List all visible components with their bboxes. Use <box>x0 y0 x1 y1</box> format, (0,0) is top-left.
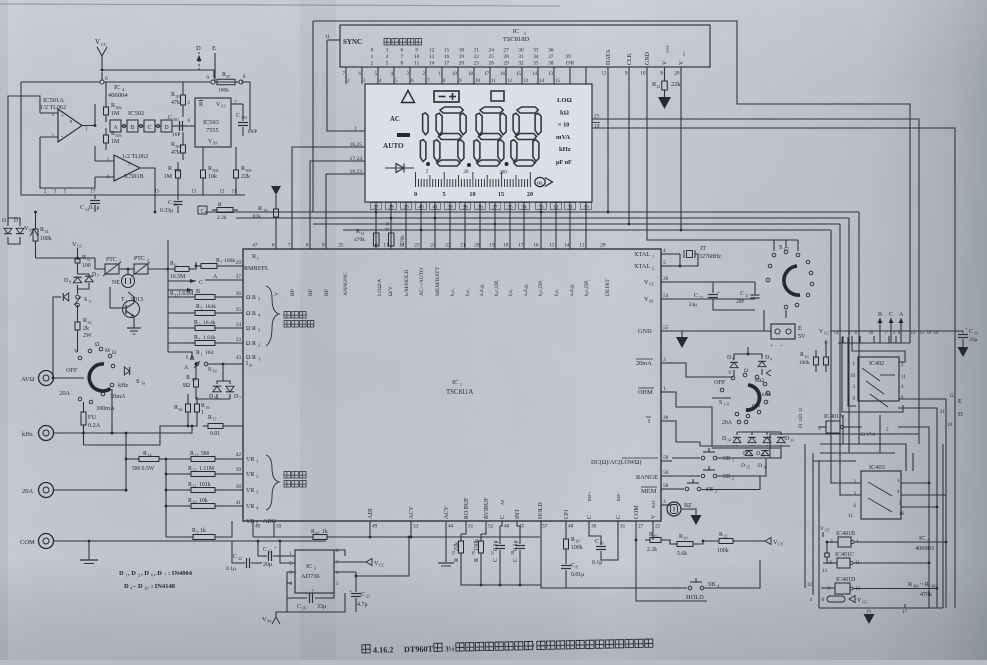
svg-text:CC: CC <box>101 42 107 47</box>
svg-text:28: 28 <box>503 54 509 60</box>
svg-text:13: 13 <box>429 54 435 60</box>
svg-text:C: C <box>587 515 593 519</box>
svg-text:14: 14 <box>564 243 570 249</box>
svg-text:15: 15 <box>555 79 561 84</box>
svg-text:20A: 20A <box>22 488 34 495</box>
svg-text:5: 5 <box>201 306 203 311</box>
svg-text:25: 25 <box>594 114 600 120</box>
svg-text:31: 31 <box>361 231 365 236</box>
svg-text:CC: CC <box>682 51 686 56</box>
svg-text:R: R <box>40 227 44 233</box>
svg-text:12: 12 <box>553 205 559 211</box>
svg-text:34: 34 <box>521 205 527 211</box>
svg-text:D: D <box>124 583 129 590</box>
svg-text:58: 58 <box>663 483 669 489</box>
svg-text:REF+: REF+ <box>587 491 592 501</box>
svg-text:10: 10 <box>469 191 475 198</box>
svg-text:CC: CC <box>649 282 655 287</box>
svg-text:54: 54 <box>663 293 669 299</box>
svg-text:39: 39 <box>236 467 242 473</box>
svg-text:MΩ: MΩ <box>755 378 764 384</box>
svg-text:INT: INT <box>515 509 521 519</box>
svg-text:1-9: 1-9 <box>724 402 729 407</box>
svg-text:37: 37 <box>236 274 242 280</box>
svg-text:S: S <box>208 367 211 373</box>
svg-text:1k: 1k <box>200 528 206 534</box>
svg-text:26: 26 <box>663 276 669 282</box>
svg-text:IC401C: IC401C <box>835 552 854 558</box>
svg-text:20: 20 <box>576 539 580 544</box>
svg-text:RVIBUF: RVIBUF <box>484 497 490 519</box>
svg-text:CC: CC <box>379 563 385 568</box>
svg-text:V: V <box>274 292 280 296</box>
svg-text:8: 8 <box>272 243 275 249</box>
svg-text:14: 14 <box>727 438 731 443</box>
svg-text:38: 38 <box>548 61 554 67</box>
svg-text:SS: SS <box>213 141 217 146</box>
svg-text:0.33μ: 0.33μ <box>160 208 173 214</box>
svg-text:8: 8 <box>69 280 71 285</box>
svg-text:1M: 1M <box>111 139 120 145</box>
svg-text:0: 0 <box>414 191 417 198</box>
svg-text:1/2 TL062: 1/2 TL062 <box>40 104 66 111</box>
svg-text:D: D <box>756 451 760 457</box>
svg-text:IC503: IC503 <box>203 119 219 126</box>
svg-text:100k: 100k <box>571 545 583 551</box>
svg-text:E: E <box>798 325 802 332</box>
svg-text:0.01: 0.01 <box>210 431 220 437</box>
svg-text:17: 17 <box>518 243 524 249</box>
svg-text:150k: 150k <box>474 539 480 551</box>
svg-text:IC501A: IC501A <box>43 97 64 104</box>
svg-text:35: 35 <box>236 307 242 313</box>
svg-text:14: 14 <box>532 72 538 77</box>
svg-text:V: V <box>663 60 669 65</box>
svg-text:12: 12 <box>429 48 435 54</box>
svg-text:100k: 100k <box>717 548 729 554</box>
svg-text:, D: , D <box>141 570 149 577</box>
svg-text:10k: 10k <box>199 498 208 504</box>
svg-text:34: 34 <box>45 229 49 234</box>
svg-text:5: 5 <box>214 396 216 401</box>
svg-text:36: 36 <box>548 48 554 54</box>
svg-text:15: 15 <box>746 465 750 470</box>
svg-text:Ω R: Ω R <box>246 341 256 347</box>
svg-text:20: 20 <box>527 191 533 198</box>
svg-text:S: S <box>779 245 782 251</box>
svg-text:C: C <box>147 125 151 131</box>
svg-text:SB: SB <box>723 474 730 480</box>
svg-text:14: 14 <box>834 331 839 336</box>
svg-text:7: 7 <box>288 243 291 249</box>
svg-text:1: 1 <box>258 357 260 362</box>
svg-text:1/2 TL062: 1/2 TL062 <box>122 153 148 160</box>
svg-text:21: 21 <box>940 410 946 415</box>
svg-text:S: S <box>136 378 140 385</box>
svg-text:1M: 1M <box>111 111 120 117</box>
svg-text:11: 11 <box>383 243 388 249</box>
svg-text:16.5M: 16.5M <box>170 274 185 280</box>
svg-text:AVΩ: AVΩ <box>21 376 35 383</box>
svg-text:kΩ: kΩ <box>560 110 569 117</box>
svg-text:12: 12 <box>601 71 607 77</box>
svg-text:470k: 470k <box>920 592 932 598</box>
svg-text:A: A <box>213 274 218 280</box>
svg-text:– D: – D <box>132 583 143 590</box>
svg-text:19: 19 <box>459 54 465 60</box>
svg-text:: IN4004: : IN4004 <box>168 570 193 577</box>
svg-text:8: 8 <box>660 71 663 77</box>
svg-text:SYNC: SYNC <box>343 38 362 46</box>
svg-text:C: C <box>297 604 301 610</box>
svg-text:: IN4148: : IN4148 <box>151 583 176 590</box>
svg-text:LOΩ/A: LOΩ/A <box>377 279 383 296</box>
svg-text:5: 5 <box>442 191 445 198</box>
svg-text:22k: 22k <box>671 81 681 88</box>
svg-text:ACV: ACV <box>444 506 450 519</box>
svg-text:5: 5 <box>663 260 666 266</box>
svg-text:18: 18 <box>459 48 465 54</box>
svg-text:VR: VR <box>246 457 254 463</box>
svg-text:14: 14 <box>539 79 545 84</box>
svg-text:27: 27 <box>373 205 379 211</box>
svg-text:SS: SS <box>649 299 653 304</box>
svg-text:29: 29 <box>236 260 242 266</box>
svg-text:C: C <box>236 113 240 119</box>
svg-text:22k: 22k <box>241 174 250 180</box>
svg-text:+: + <box>311 589 314 594</box>
svg-text:19: 19 <box>594 124 600 130</box>
svg-text:16: 16 <box>763 465 767 470</box>
svg-text:IC: IC <box>919 535 925 542</box>
svg-text:D: D <box>64 278 68 284</box>
svg-text:29: 29 <box>403 205 409 211</box>
svg-text:46: 46 <box>504 524 510 530</box>
svg-text:406004: 406004 <box>108 92 128 99</box>
svg-text:D: D <box>2 218 6 224</box>
svg-text:R: R <box>170 291 174 297</box>
svg-text:R: R <box>188 498 192 504</box>
svg-text:1: 1 <box>371 54 374 60</box>
svg-text:IC401B: IC401B <box>836 531 855 537</box>
svg-text:ACV: ACV <box>409 506 415 519</box>
svg-text:2.2k: 2.2k <box>647 547 657 553</box>
svg-text:R: R <box>143 451 147 457</box>
svg-text:b,c,DP,: b,c,DP, <box>494 279 500 296</box>
svg-text:DISP: DISP <box>666 45 670 53</box>
svg-text:Ω R: Ω R <box>246 295 256 301</box>
svg-text:0.1μ: 0.1μ <box>513 540 519 551</box>
svg-text:Ω/V: Ω/V <box>388 286 394 296</box>
svg-text:I: I <box>246 361 248 367</box>
svg-text:REF-: REF- <box>616 492 621 501</box>
svg-text:NE: NE <box>112 280 120 286</box>
svg-text:C: C <box>740 291 744 297</box>
svg-text:10: 10 <box>850 374 856 379</box>
svg-text:+: + <box>717 291 720 296</box>
svg-text:39: 39 <box>447 205 453 211</box>
svg-text:VR: VR <box>246 472 254 478</box>
svg-text:CC: CC <box>862 600 868 605</box>
svg-text:5V: 5V <box>798 334 806 340</box>
svg-text:C: C <box>493 558 499 562</box>
svg-text:D: D <box>92 272 96 278</box>
svg-text:1: 1 <box>354 126 357 132</box>
svg-text:401: 401 <box>913 584 919 589</box>
svg-text:30: 30 <box>591 524 597 530</box>
svg-text:AZ: AZ <box>500 499 505 505</box>
svg-text:17: 17 <box>444 61 450 67</box>
svg-text:44: 44 <box>448 524 454 530</box>
svg-text:R: R <box>216 258 220 264</box>
svg-text:9: 9 <box>197 530 199 535</box>
svg-text:CFI: CFI <box>564 510 570 519</box>
svg-text:38: 38 <box>462 205 468 211</box>
svg-text:a,d,g,: a,d,g, <box>569 283 575 296</box>
svg-text:9Ω: 9Ω <box>183 383 191 389</box>
svg-text:× 10: × 10 <box>558 122 569 129</box>
svg-text:4: 4 <box>663 248 666 254</box>
svg-text:1M: 1M <box>164 174 173 180</box>
svg-text:11: 11 <box>325 34 331 40</box>
svg-text:16,25: 16,25 <box>350 142 363 148</box>
svg-text:MEM/BATT: MEM/BATT <box>435 267 441 296</box>
svg-text:47k: 47k <box>171 100 180 106</box>
svg-text:BZ: BZ <box>684 503 692 509</box>
svg-text:b,c,: b,c, <box>450 287 456 296</box>
svg-text:20: 20 <box>474 243 480 249</box>
svg-text:, D: , D <box>128 570 136 577</box>
svg-text:12: 12 <box>507 79 513 84</box>
svg-text:34: 34 <box>533 54 539 60</box>
svg-text:56: 56 <box>663 470 669 476</box>
svg-text:18: 18 <box>503 243 509 249</box>
svg-text:Ω: Ω <box>744 368 748 374</box>
svg-text:20: 20 <box>869 331 874 336</box>
svg-text:C: C <box>889 312 893 318</box>
svg-text:17: 17 <box>484 72 490 77</box>
svg-text:D: D <box>765 355 769 361</box>
svg-text:0.1μ: 0.1μ <box>493 540 499 551</box>
svg-text:8: 8 <box>306 243 309 249</box>
svg-text:7: 7 <box>221 260 223 265</box>
svg-text:IC403: IC403 <box>869 464 885 471</box>
svg-text:VR: VR <box>246 488 254 494</box>
svg-text:IC: IC <box>513 28 520 35</box>
svg-text:41: 41 <box>236 500 242 506</box>
svg-text:IC: IC <box>114 84 121 91</box>
svg-text:501: 501 <box>173 117 179 122</box>
svg-text:AC: AC <box>390 116 400 123</box>
svg-text:504: 504 <box>213 168 219 173</box>
svg-text:50: 50 <box>276 524 282 530</box>
svg-text:XTAL: XTAL <box>634 263 650 270</box>
svg-text:CC: CC <box>825 529 831 533</box>
svg-text:20P: 20P <box>736 300 744 305</box>
svg-text:35: 35 <box>507 205 513 211</box>
svg-text:C: C <box>80 205 84 211</box>
svg-text:D: D <box>727 355 731 361</box>
svg-text:IC401D: IC401D <box>836 577 856 583</box>
svg-text:20μ: 20μ <box>263 562 272 568</box>
svg-text:CC: CC <box>221 104 227 109</box>
svg-text:15: 15 <box>444 48 450 54</box>
svg-text:S: S <box>84 297 87 303</box>
svg-text:164: 164 <box>205 350 214 356</box>
svg-text:R: R <box>908 582 912 588</box>
svg-text:8: 8 <box>400 61 403 67</box>
svg-text:509: 509 <box>246 168 252 173</box>
svg-text:2: 2 <box>258 343 260 348</box>
svg-text:C: C <box>616 515 622 519</box>
svg-text:33: 33 <box>538 205 544 211</box>
svg-text:D: D <box>741 463 745 469</box>
svg-text:C: C <box>201 209 205 215</box>
svg-text:IC: IC <box>306 563 312 570</box>
svg-text:47k: 47k <box>171 150 180 156</box>
svg-text:2k: 2k <box>83 326 89 332</box>
svg-text:0.2A: 0.2A <box>88 422 101 429</box>
svg-text:47: 47 <box>252 243 258 249</box>
svg-text:25: 25 <box>489 54 495 60</box>
svg-text:RANGE: RANGE <box>636 474 658 481</box>
svg-text:36: 36 <box>179 407 183 412</box>
svg-text:30: 30 <box>518 48 524 54</box>
svg-text:ANNUNC: ANNUNC <box>343 272 349 296</box>
svg-text:C: C <box>233 554 237 560</box>
svg-text:~ R: ~ R <box>920 582 929 588</box>
svg-text:21: 21 <box>657 84 661 89</box>
svg-text:CC: CC <box>824 331 830 336</box>
svg-text:V: V <box>820 526 824 532</box>
svg-text:10: 10 <box>805 354 809 359</box>
svg-text:R: R <box>208 415 212 421</box>
svg-text:3½: 3½ <box>445 644 455 653</box>
svg-text:37: 37 <box>548 54 554 60</box>
svg-text:8: 8 <box>576 565 578 570</box>
svg-text:33μ: 33μ <box>969 337 978 343</box>
svg-text:24: 24 <box>430 243 436 249</box>
svg-text:SS: SS <box>267 619 271 624</box>
svg-text:C: C <box>571 563 575 569</box>
svg-text:26: 26 <box>489 61 495 67</box>
svg-text:31: 31 <box>518 54 524 60</box>
svg-text:0: 0 <box>371 48 374 54</box>
svg-text:O'R: O'R <box>566 61 575 67</box>
svg-text:1: 1 <box>652 254 654 259</box>
svg-text:11: 11 <box>491 79 496 84</box>
svg-text:4: 4 <box>386 54 389 60</box>
svg-text:41: 41 <box>432 205 438 211</box>
svg-text:32: 32 <box>807 583 813 588</box>
svg-text:A: A <box>184 365 189 371</box>
svg-text:13: 13 <box>523 79 529 84</box>
svg-text:33μ: 33μ <box>317 604 326 610</box>
svg-text:Ω: Ω <box>112 350 116 356</box>
svg-text:21: 21 <box>474 48 480 54</box>
svg-text:CC: CC <box>77 244 83 249</box>
svg-text:CLK: CLK <box>627 52 633 65</box>
svg-text:C: C <box>168 115 172 121</box>
svg-text:14: 14 <box>148 453 152 458</box>
svg-text:GND: GND <box>645 51 651 65</box>
svg-text:2: 2 <box>652 266 654 271</box>
svg-text:C: C <box>168 200 172 206</box>
svg-text:6: 6 <box>105 76 108 82</box>
svg-text:40: 40 <box>418 205 424 211</box>
svg-text:100P: 100P <box>247 130 258 135</box>
svg-text:9013: 9013 <box>131 297 143 303</box>
svg-text:470k: 470k <box>354 237 365 243</box>
svg-text:R: R <box>252 254 256 260</box>
svg-text:5M: 5M <box>201 451 209 457</box>
svg-text:20: 20 <box>464 170 470 175</box>
svg-text:20A: 20A <box>59 390 70 397</box>
svg-text:100k: 100k <box>799 360 810 366</box>
svg-text:mVA: mVA <box>556 134 570 141</box>
svg-text:R: R <box>258 206 262 212</box>
svg-text:D: D <box>785 436 789 442</box>
svg-text:9: 9 <box>770 357 772 362</box>
svg-text:28: 28 <box>388 205 394 211</box>
svg-text:10: 10 <box>855 587 861 592</box>
svg-text:0.1μ: 0.1μ <box>226 566 236 572</box>
svg-text:16: 16 <box>444 54 450 60</box>
svg-text:b,c,DP,: b,c,DP, <box>584 279 590 296</box>
svg-text:13: 13 <box>790 438 794 443</box>
svg-text:mA: mA <box>752 403 760 409</box>
svg-text:JT: JT <box>700 246 706 252</box>
svg-text:21: 21 <box>366 594 370 599</box>
svg-text:40: 40 <box>255 524 261 530</box>
svg-text:b,c,DP,: b,c,DP, <box>538 279 544 296</box>
svg-text:18: 18 <box>468 72 474 77</box>
svg-text:19: 19 <box>654 534 658 539</box>
svg-text:1c: 1c <box>89 299 93 304</box>
svg-text:C: C <box>263 547 267 553</box>
svg-text:D: D <box>798 424 804 428</box>
svg-text:OFF: OFF <box>714 379 726 386</box>
svg-text:DT960T: DT960T <box>404 645 434 655</box>
svg-text:13: 13 <box>195 453 199 458</box>
svg-text:100k: 100k <box>40 236 52 242</box>
svg-text:406003: 406003 <box>915 545 934 552</box>
svg-text:55: 55 <box>663 325 669 331</box>
svg-text:19: 19 <box>489 243 495 249</box>
svg-text:AUTO: AUTO <box>383 142 404 150</box>
svg-text:33: 33 <box>88 320 92 325</box>
svg-text:11: 11 <box>848 514 853 519</box>
svg-text:ADI: ADI <box>368 508 374 519</box>
svg-text:f,e,: f,e, <box>464 288 471 296</box>
svg-text:+: + <box>965 327 968 332</box>
svg-text:S: S <box>719 400 722 406</box>
svg-text:1: 1 <box>201 352 203 357</box>
svg-text:42: 42 <box>316 531 320 536</box>
svg-text:D: D <box>196 45 201 52</box>
svg-text:33μ: 33μ <box>689 302 698 308</box>
svg-text:16: 16 <box>500 72 506 77</box>
svg-text:36: 36 <box>236 291 242 297</box>
svg-text:164k: 164k <box>205 304 216 310</box>
svg-text:C: C <box>199 280 203 286</box>
svg-text:1.63M: 1.63M <box>178 291 193 297</box>
svg-text:5M 0.5W: 5M 0.5W <box>132 466 155 472</box>
svg-text:DC(Ω)/AC(LOWΩ): DC(Ω)/AC(LOWΩ) <box>591 459 641 466</box>
svg-text:R: R <box>192 528 196 534</box>
svg-text:32768Hz: 32768Hz <box>699 254 721 260</box>
svg-text:2: 2 <box>256 474 258 479</box>
